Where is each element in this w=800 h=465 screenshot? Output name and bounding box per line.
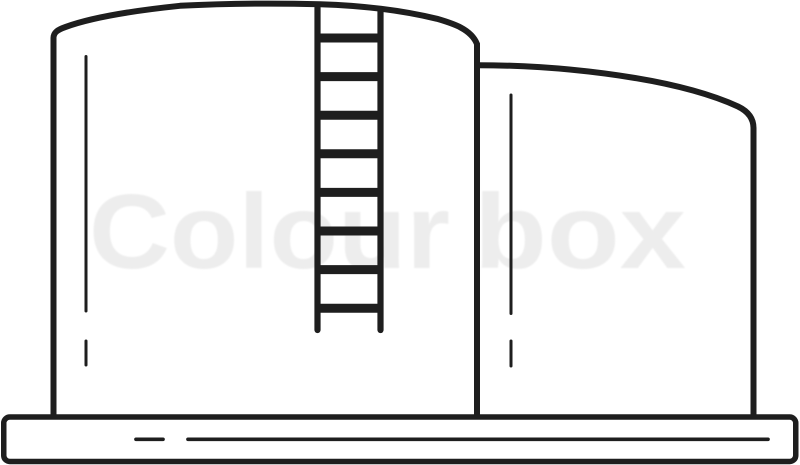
svg-text:Colour: Colour — [89, 173, 450, 291]
svg-text:box: box — [474, 173, 686, 291]
